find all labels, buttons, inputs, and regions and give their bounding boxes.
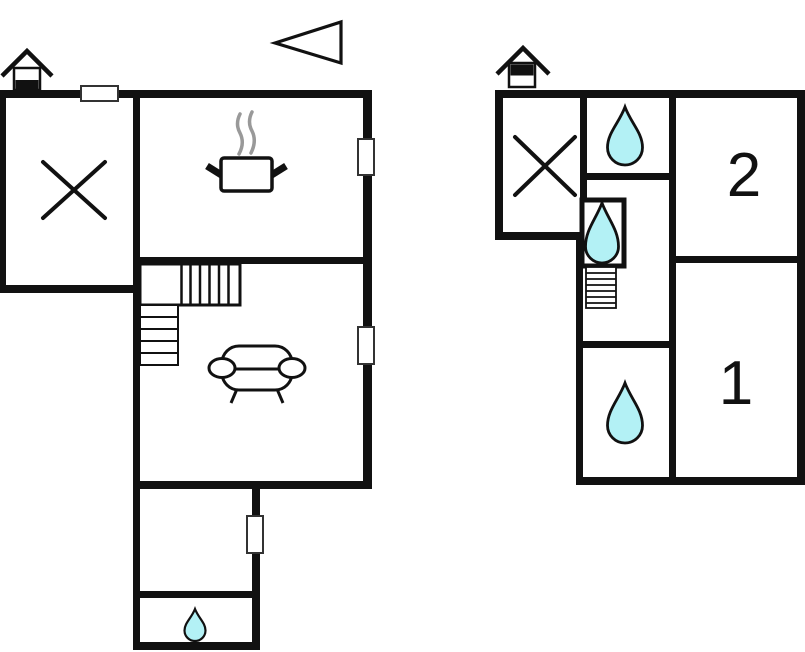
wall-segment — [135, 591, 260, 598]
wall-segment — [669, 97, 676, 482]
shower-icon — [582, 200, 624, 266]
wall-segment — [495, 90, 503, 240]
staircase-icon — [140, 264, 240, 365]
steam-wisp — [250, 112, 255, 153]
steam-wisp — [238, 114, 243, 154]
stove-pot-icon — [207, 112, 286, 191]
chimney-black-band — [511, 65, 534, 76]
north-arrow-icon — [275, 22, 341, 63]
bedroom-1-label: 1 — [719, 349, 753, 418]
sofa-icon — [209, 346, 305, 403]
wall-segment — [0, 285, 140, 293]
wall-segment — [576, 477, 805, 485]
wall-segment — [576, 232, 583, 485]
wall-segment — [495, 90, 805, 98]
crossed-room-icon — [515, 137, 575, 195]
wall-segment — [495, 232, 587, 240]
window-marker — [247, 516, 263, 553]
stair-lower-run — [140, 305, 178, 365]
ground-floor-plan — [0, 51, 374, 650]
water-drop-icon — [608, 107, 643, 165]
wall-segment — [252, 481, 260, 650]
floor-plan-canvas: 2 1 — [0, 0, 805, 652]
sofa-armrest — [279, 359, 305, 378]
wall-segment — [797, 90, 805, 485]
wall-segment — [587, 173, 669, 180]
window-marker — [81, 86, 118, 101]
wall-segment — [135, 642, 260, 650]
wall-segment — [583, 341, 669, 348]
bedroom-2-label: 2 — [727, 141, 761, 210]
water-drop-icon — [185, 609, 206, 641]
chimney-icon — [497, 48, 549, 87]
crossed-room-icon — [43, 162, 105, 218]
chimney-black-band — [16, 80, 39, 90]
floor-plan-drawing: 2 1 — [0, 0, 805, 652]
chimney-icon — [2, 51, 52, 90]
water-drop-icon — [608, 383, 643, 443]
wall-segment — [0, 90, 372, 98]
window-marker — [358, 327, 374, 364]
staircase-icon — [586, 267, 616, 308]
sofa-armrest — [209, 359, 235, 378]
window-marker — [358, 139, 374, 175]
wall-segment — [0, 90, 6, 292]
first-floor-plan: 2 1 — [495, 48, 805, 485]
wall-segment — [676, 256, 797, 263]
pot-body — [221, 158, 272, 191]
